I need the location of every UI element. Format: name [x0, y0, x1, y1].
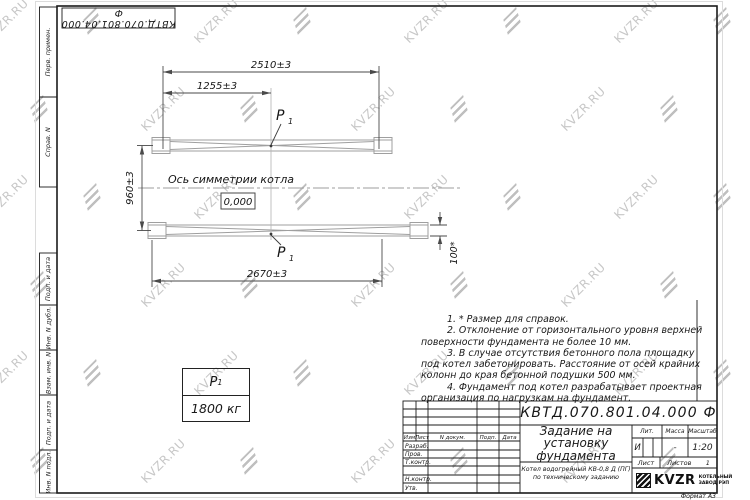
load-symbol-index: 1	[217, 378, 222, 387]
load-table-value: 1800 кг	[183, 396, 249, 421]
row-razrab: Разраб.	[405, 443, 429, 451]
product-line-2: по техническому заданию	[521, 474, 631, 482]
sheets-cell: Листов 1	[660, 459, 717, 467]
kvzr-logo-icon	[636, 473, 651, 488]
mass-label: Масса	[662, 428, 688, 436]
dim-top-label: 2510±3	[251, 60, 291, 71]
margin-cell-podp-data-2: Подп. и дата	[41, 395, 55, 450]
kvzr-logo-text: KVZR	[654, 473, 696, 488]
margin-cell-inv-podl: Инв. N подл.	[41, 450, 55, 493]
company-logo-cell: KVZR КОТЕЛЬНЫЙ ЗАВОД РЭП	[632, 468, 717, 493]
sheets-label: Листов	[667, 459, 691, 467]
company-line-2: ЗАВОД РЭП	[699, 481, 733, 486]
drawing-linework: 2510±3 1255±3 2670±3 960±3 100* Ось симм…	[0, 0, 750, 500]
note-1: 1. * Размер для справок.	[421, 314, 712, 325]
dim-width-label: 100*	[449, 241, 460, 264]
center-lines	[138, 88, 462, 240]
margin-cell-vzam-inv: Взам. инв. N	[41, 350, 55, 395]
col-dokum: N докум.	[428, 434, 477, 442]
col-data: Дата	[499, 434, 520, 442]
dim-bottom-label: 2670±3	[247, 269, 287, 280]
scale-label: Масштаб	[688, 428, 717, 436]
margin-cell-perv-primen: Перв. примен.	[41, 7, 55, 97]
margin-cell-podp-data-1: Подп. и дата	[41, 253, 55, 305]
mass-value: -	[662, 438, 688, 457]
sheet-label: Лист	[632, 459, 660, 467]
dim-height-label: 960±3	[125, 171, 136, 205]
product-description: Котел водогрейный КВ-0,8 Д (ПГ) по техни…	[521, 466, 631, 481]
sheets-value: 1	[706, 459, 710, 467]
dim-half-label: 1255±3	[197, 81, 237, 92]
row-prov: Пров.	[405, 451, 422, 459]
elevation-mark-value: 0,000	[224, 197, 253, 208]
col-podp: Подп.	[477, 434, 499, 442]
symmetry-axis-label: Ось симметрии котла	[168, 173, 294, 186]
margin-cell-inv-dubl: Инв. N дубл.	[41, 305, 55, 350]
top-designation-stamp: КВТД.070.801.04.000 Ф	[62, 8, 175, 28]
company-line-1: КОТЕЛЬНЫЙ	[699, 475, 733, 480]
load-p1-bottom-symbol: P	[277, 245, 286, 261]
lit-label: Лит.	[632, 428, 662, 436]
company-name: КОТЕЛЬНЫЙ ЗАВОД РЭП	[699, 475, 733, 486]
product-line-1: Котел водогрейный КВ-0,8 Д (ПГ)	[521, 466, 631, 474]
scale-value: 1:20	[688, 438, 717, 457]
row-tkontr: Т.контр.	[405, 459, 431, 467]
lit-value: И	[632, 438, 643, 457]
title-block-designation: КВТД.070.801.04.000 Ф	[521, 401, 716, 425]
note-3: 3. В случае отсутствия бетонного пола пл…	[421, 348, 712, 382]
row-utv: Утв.	[405, 485, 418, 493]
document-title: Задание на установку фундамента	[520, 426, 632, 461]
load-table-symbol: P1	[183, 369, 249, 396]
row-nkontr: Н.контр.	[405, 476, 432, 484]
drawing-sheet: KVZR.RUKVZR.RUKVZR.RUKVZR.RUKVZR.RUKVZR.…	[0, 0, 750, 500]
margin-cell-sprav-n: Справ. N	[41, 97, 55, 187]
load-p1-top-symbol: P	[276, 108, 285, 124]
col-list: Лист	[416, 434, 428, 442]
technical-notes: 1. * Размер для справок. 2. Отклонение о…	[421, 314, 712, 404]
load-table: P1 1800 кг	[182, 368, 250, 422]
format-note: Формат А3	[640, 493, 716, 500]
load-p1-top-index: 1	[288, 117, 293, 126]
note-2: 2. Отклонение от горизонтального уровня …	[421, 325, 712, 348]
load-p1-bottom-index: 1	[289, 254, 294, 263]
bottom-foundation-strip	[148, 223, 428, 239]
load-symbol-letter: P	[210, 375, 218, 390]
